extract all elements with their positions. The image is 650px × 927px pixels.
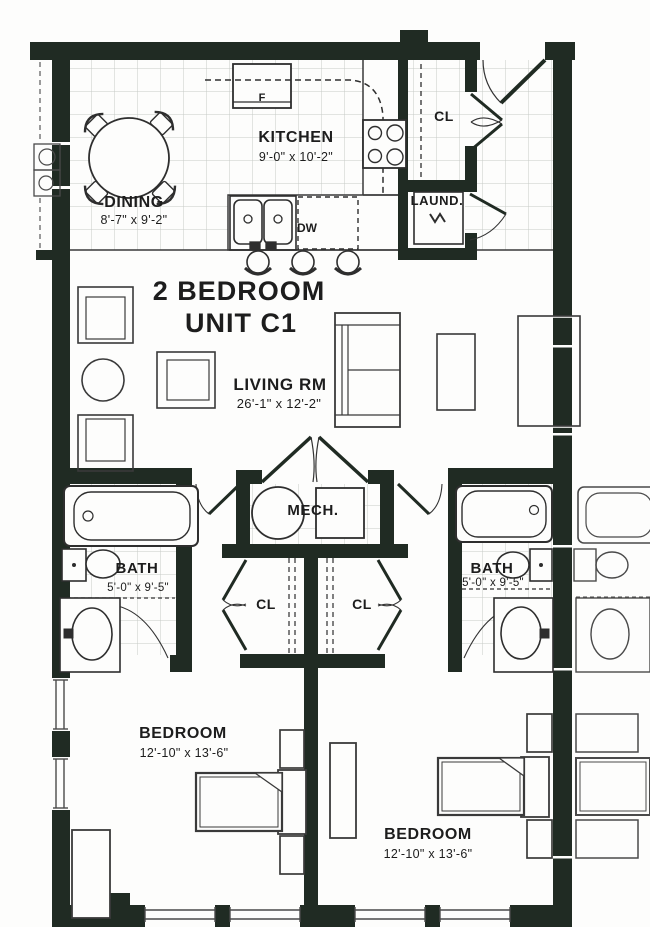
armchair-icon: [157, 352, 215, 408]
bath-left-dims: 5'-0" x 9'-5": [107, 582, 169, 594]
armchair-icon: [78, 287, 133, 343]
bath-right-dims: 5'-0" x 9'-5": [462, 577, 524, 589]
dining-label: DINING: [104, 194, 164, 211]
bedroom-left-dims: 12'-10" x 13'-6": [140, 746, 229, 760]
bedroom-right-dims: 12'-10" x 13'-6": [384, 847, 473, 861]
laundry-label: LAUND.: [411, 193, 464, 208]
bath-left-label: BATH: [116, 560, 159, 577]
bedroom-right-label: BEDROOM: [384, 826, 472, 843]
side-table-icon: [82, 359, 124, 401]
bed-icon: [438, 757, 549, 817]
living-label: LIVING RM: [233, 375, 326, 394]
dining-table-icon: [89, 118, 169, 198]
dresser-icon: [330, 743, 356, 838]
nightstand-icon: [527, 714, 552, 752]
nightstand-icon: [527, 820, 552, 858]
dining-dims: 8'-7" x 9'-2": [101, 213, 168, 227]
unit-title-line2: UNIT C1: [185, 308, 297, 338]
bed-icon: [196, 770, 306, 834]
kitchen-label: KITCHEN: [258, 129, 333, 146]
vanity-sink-icon: [60, 598, 120, 672]
sofa-icon: [335, 313, 400, 427]
entry-closet-label: CL: [434, 108, 454, 124]
armchair-icon: [78, 415, 133, 471]
bathtub-icon: [64, 486, 198, 546]
unit-title-line1: 2 BEDROOM: [153, 276, 326, 306]
bar-stools-icon: [245, 251, 361, 274]
nightstand-icon: [280, 836, 304, 874]
coffee-table-icon: [437, 334, 475, 410]
vanity-sink-icon: [494, 598, 553, 672]
closet-right-label: CL: [352, 596, 372, 612]
fridge-label: F: [259, 92, 266, 104]
nightstand-icon: [280, 730, 304, 768]
kitchen-dims: 9'-0" x 10'-2": [259, 150, 333, 164]
bedroom-left-label: BEDROOM: [139, 725, 227, 742]
closet-left-label: CL: [256, 596, 276, 612]
floor-plan-page: KITCHEN 9'-0" x 10'-2" DINING 8'-7" x 9'…: [0, 0, 650, 927]
floor-plan-drawing: KITCHEN 9'-0" x 10'-2" DINING 8'-7" x 9'…: [0, 0, 650, 927]
dresser-icon: [72, 830, 110, 918]
living-dims: 26'-1" x 12'-2": [237, 396, 322, 411]
bathtub-icon: [456, 486, 552, 542]
living-furniture: [78, 287, 580, 471]
mech-label: MECH.: [287, 502, 338, 519]
dishwasher-label: DW: [297, 221, 318, 235]
bath-right-label: BATH: [471, 560, 514, 577]
